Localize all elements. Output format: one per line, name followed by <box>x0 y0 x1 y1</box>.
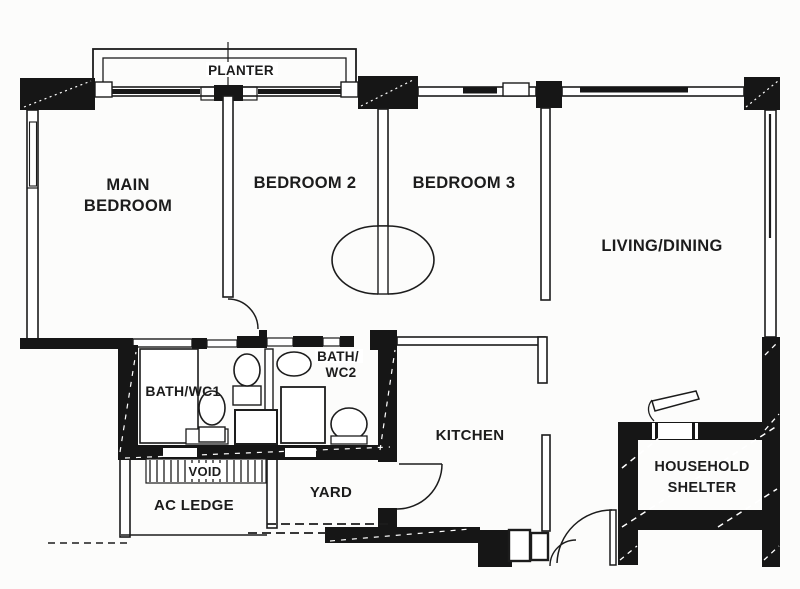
bath1-sliding-door <box>133 339 192 347</box>
wall-block-bedroom3-living <box>536 81 562 108</box>
bath-block-bottom-wall <box>118 445 395 460</box>
riser-box-2 <box>531 533 548 560</box>
column-top-middle <box>358 76 418 109</box>
label-living-dining: LIVING/DINING <box>601 237 722 255</box>
wall-bedroom2-bedroom3 <box>378 109 388 226</box>
shelter-top-wall <box>618 422 780 440</box>
sink1-basin <box>234 354 260 386</box>
riser-box-1 <box>509 530 530 561</box>
toilet2-bowl <box>331 408 367 440</box>
label-planter: PLANTER <box>208 63 274 78</box>
kitchen-right-wall <box>542 435 550 531</box>
label-main-bedroom-1: MAIN <box>106 176 149 194</box>
column-top-right <box>744 77 780 110</box>
entrance-wall-block <box>478 530 512 567</box>
shelter-right-wall <box>762 337 780 567</box>
sink1-pedestal <box>233 386 261 405</box>
kitchen-bottom-wall <box>325 527 480 543</box>
label-kitchen: KITCHEN <box>436 427 505 444</box>
bath2-sliding-door <box>267 338 293 346</box>
wall-bedroom3-living <box>541 108 550 300</box>
label-bath-wc1: BATH/WC1 <box>145 383 220 399</box>
label-main-bedroom-2: BEDROOM <box>84 197 172 215</box>
wall-acledge-yard <box>267 458 277 528</box>
label-shelter-2: SHELTER <box>668 480 737 496</box>
bath-divider-wall <box>265 349 273 411</box>
door-leaves-bedroom2-bedroom3 <box>378 226 388 294</box>
label-ac-ledge: AC LEDGE <box>154 497 234 514</box>
toilet2-base <box>331 436 367 444</box>
entrance-door-leaf <box>610 510 616 565</box>
shelter-left-wall <box>618 422 638 565</box>
kitchen-top-wall <box>397 337 545 345</box>
label-void: VOID <box>189 464 222 479</box>
entrance-boxes <box>509 530 548 561</box>
label-shelter-1: HOUSEHOLD <box>654 459 749 475</box>
left-window-sash <box>30 122 37 186</box>
label-yard: YARD <box>310 484 352 501</box>
label-bath-wc2-1: BATH/ <box>317 349 359 364</box>
bath1-shower-tray <box>235 410 277 444</box>
bath2-shower <box>281 387 325 443</box>
floor-plan-drawing: PLANTER MAIN BEDROOM BEDROOM 2 BEDROOM 3… <box>0 0 800 589</box>
acledge-left-wall <box>120 458 130 537</box>
label-bedroom2: BEDROOM 2 <box>254 174 357 192</box>
wall-mainbedroom-bedroom2 <box>223 96 233 297</box>
label-bedroom3: BEDROOM 3 <box>413 174 516 192</box>
kitchen-right-wall-stub <box>538 337 547 383</box>
toilet1-tank <box>199 427 225 442</box>
floor-plan-page: PLANTER MAIN BEDROOM BEDROOM 2 BEDROOM 3… <box>0 0 800 589</box>
label-bath-wc2-2: WC2 <box>326 365 357 380</box>
column-top-left <box>20 78 95 110</box>
kitchen-left-wall-upper <box>378 330 397 462</box>
sink2-basin <box>277 352 311 376</box>
